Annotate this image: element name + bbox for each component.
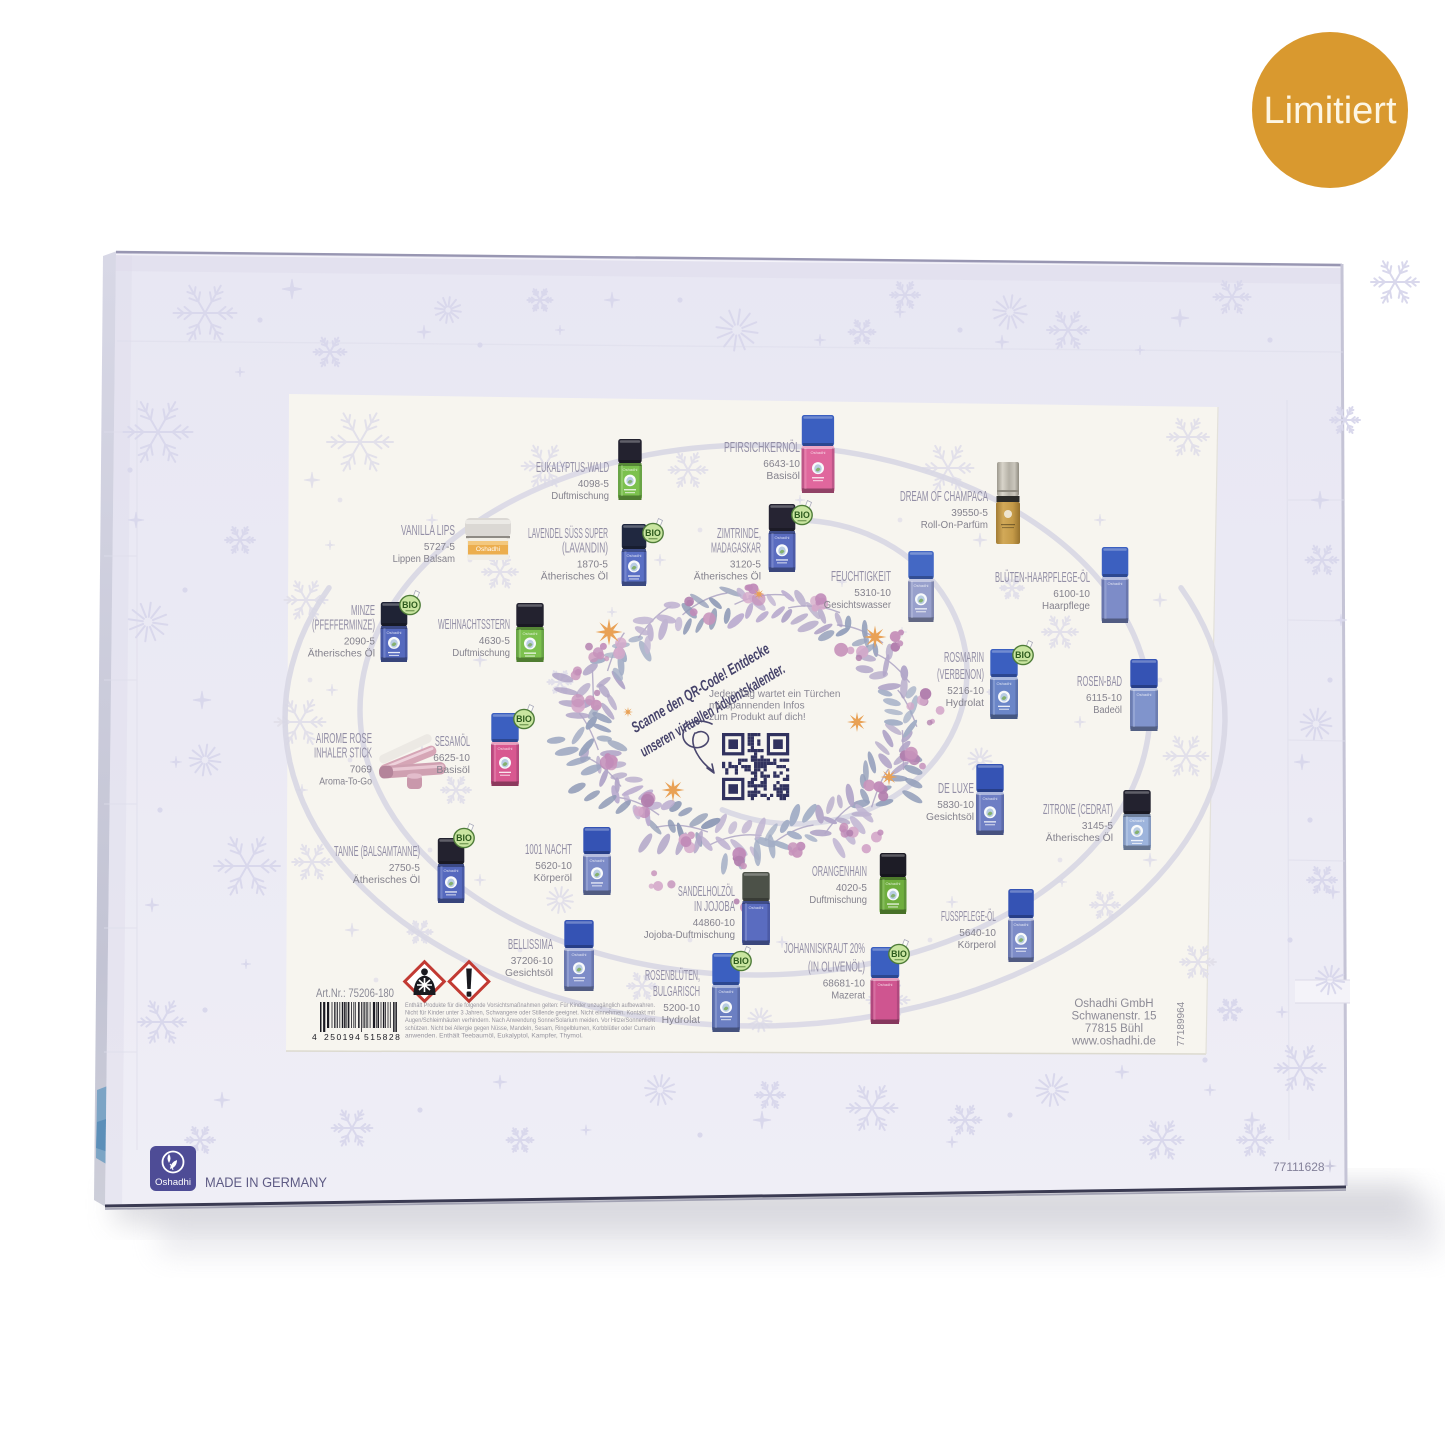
- svg-text:(LAVANDIN): (LAVANDIN): [562, 541, 608, 557]
- svg-text:DE LUXE: DE LUXE: [938, 781, 974, 797]
- svg-text:68681-10: 68681-10: [823, 979, 866, 990]
- svg-text:Gesichtswasser: Gesichtswasser: [824, 600, 892, 611]
- svg-text:6115-10: 6115-10: [1086, 693, 1122, 704]
- svg-text:4098-5: 4098-5: [578, 479, 610, 490]
- svg-text:ROSMARIN: ROSMARIN: [944, 650, 984, 666]
- svg-text:Roll-On-Parfüm: Roll-On-Parfüm: [921, 520, 988, 531]
- svg-text:Duftmischung: Duftmischung: [452, 648, 510, 659]
- svg-text:Jeden Tag wartet ein Türchen: Jeden Tag wartet ein Türchen: [709, 689, 840, 700]
- svg-text:anwenden. Enthält Teebaumöl, E: anwenden. Enthält Teebaumöl, Eukalyptol,…: [405, 1032, 583, 1039]
- svg-text:37206-10: 37206-10: [511, 956, 554, 967]
- svg-text:Duftmischung: Duftmischung: [551, 491, 609, 502]
- svg-text:Hydrolat: Hydrolat: [946, 698, 985, 709]
- svg-text:IN JOJOBA: IN JOJOBA: [694, 899, 735, 915]
- svg-text:VANILLA LIPS: VANILLA LIPS: [401, 523, 455, 539]
- svg-text:Körperol: Körperol: [958, 940, 996, 951]
- svg-text:Nicht für Kinder unter 3 Jahre: Nicht für Kinder unter 3 Jahren, Schwang…: [405, 1010, 655, 1017]
- svg-text:Basisöl: Basisöl: [766, 471, 800, 482]
- svg-text:WEIHNACHTSSTERN: WEIHNACHTSSTERN: [438, 617, 510, 633]
- svg-text:Ätherisches Öl: Ätherisches Öl: [308, 648, 375, 660]
- svg-text:Mazerat: Mazerat: [831, 991, 865, 1002]
- svg-text:MADE IN GERMANY: MADE IN GERMANY: [205, 1174, 328, 1190]
- svg-text:Ätherisches Öl: Ätherisches Öl: [1046, 832, 1113, 844]
- svg-text:ROSEN-BAD: ROSEN-BAD: [1077, 674, 1122, 690]
- svg-text:Ätherisches Öl: Ätherisches Öl: [353, 874, 420, 886]
- svg-text:Augen/Schleimhäuten verhindern: Augen/Schleimhäuten verhindern. Nach Anw…: [405, 1017, 655, 1024]
- svg-text:Ätherisches Öl: Ätherisches Öl: [541, 571, 608, 583]
- svg-text:Oshadhi GmbH: Oshadhi GmbH: [1074, 998, 1153, 1010]
- svg-text:Aroma-To-Go: Aroma-To-Go: [319, 777, 372, 788]
- svg-text:5830-10: 5830-10: [937, 800, 974, 811]
- svg-text:Körperöl: Körperöl: [534, 873, 572, 884]
- svg-text:5620-10: 5620-10: [535, 861, 572, 872]
- svg-text:ORANGENHAIN: ORANGENHAIN: [812, 864, 867, 880]
- svg-text:LAVENDEL SÜSS SUPER: LAVENDEL SÜSS SUPER: [528, 524, 608, 542]
- svg-text:SESAMÖL: SESAMÖL: [435, 732, 470, 750]
- svg-text:Haarpflege: Haarpflege: [1042, 601, 1090, 612]
- svg-text:Oshadhi: Oshadhi: [1137, 692, 1152, 697]
- svg-text:Oshadhi: Oshadhi: [983, 796, 998, 801]
- svg-text:1001 NACHT: 1001 NACHT: [525, 842, 572, 858]
- svg-text:zum Produkt auf dich!: zum Produkt auf dich!: [709, 712, 806, 723]
- svg-text:515828: 515828: [364, 1032, 401, 1042]
- svg-text:Badeöl: Badeöl: [1093, 705, 1122, 716]
- svg-text:6100-10: 6100-10: [1053, 589, 1090, 600]
- svg-text:4020-5: 4020-5: [836, 883, 868, 894]
- svg-text:BLÜTEN-HAARPFLEGE-ÖL: BLÜTEN-HAARPFLEGE-ÖL: [995, 568, 1090, 586]
- svg-text:250194: 250194: [324, 1032, 361, 1042]
- svg-text:Oshadhi: Oshadhi: [914, 583, 929, 588]
- svg-text:FEUCHTIGKEIT: FEUCHTIGKEIT: [831, 569, 891, 585]
- svg-text:5310-10: 5310-10: [854, 588, 891, 599]
- svg-text:PFIRSICHKERNÖL: PFIRSICHKERNÖL: [724, 438, 800, 456]
- svg-text:Lippen Balsam: Lippen Balsam: [393, 554, 455, 565]
- svg-text:Oshadhi: Oshadhi: [623, 467, 638, 472]
- svg-text:5727-5: 5727-5: [424, 542, 456, 553]
- svg-text:(IN OLIVENÖL): (IN OLIVENÖL): [808, 958, 865, 976]
- svg-text:BIO: BIO: [456, 833, 472, 843]
- svg-text:Oshadhi: Oshadhi: [572, 952, 587, 957]
- svg-text:DREAM OF CHAMPACA: DREAM OF CHAMPACA: [900, 489, 988, 505]
- svg-text:Hydrolat: Hydrolat: [662, 1015, 701, 1026]
- svg-text:Basisöl: Basisöl: [436, 765, 470, 776]
- svg-text:5200-10: 5200-10: [663, 1003, 700, 1014]
- svg-text:Oshadhi: Oshadhi: [1014, 922, 1029, 927]
- svg-text:2090-5: 2090-5: [344, 637, 376, 648]
- svg-text:77815 Bühl: 77815 Bühl: [1085, 1023, 1143, 1035]
- svg-text:Oshadhi: Oshadhi: [878, 982, 893, 987]
- svg-text:BIO: BIO: [794, 510, 810, 520]
- svg-text:mit spannenden Infos: mit spannenden Infos: [709, 701, 805, 712]
- svg-text:5216-10: 5216-10: [947, 686, 984, 697]
- svg-text:TANNE (BALSAMTANNE): TANNE (BALSAMTANNE): [334, 844, 420, 860]
- svg-text:BIO: BIO: [733, 956, 749, 966]
- svg-text:44860-10: 44860-10: [693, 918, 736, 929]
- svg-text:JOHANNISKRAUT 20%: JOHANNISKRAUT 20%: [784, 941, 865, 957]
- svg-text:BIO: BIO: [402, 600, 418, 610]
- svg-text:3120-5: 3120-5: [730, 560, 762, 571]
- svg-text:5640-10: 5640-10: [959, 928, 996, 939]
- svg-text:Ätherisches Öl: Ätherisches Öl: [694, 571, 761, 583]
- svg-text:Oshadhi: Oshadhi: [886, 881, 901, 886]
- svg-text:Jojoba-Duftmischung: Jojoba-Duftmischung: [644, 930, 735, 941]
- svg-text:4630-5: 4630-5: [479, 636, 511, 647]
- svg-text:ROSENBLÜTEN,: ROSENBLÜTEN,: [645, 966, 700, 984]
- svg-text:Limitiert: Limitiert: [1263, 90, 1396, 132]
- svg-text:INHALER STICK: INHALER STICK: [314, 746, 372, 762]
- svg-text:Oshadhi: Oshadhi: [997, 681, 1012, 686]
- svg-text:4: 4: [312, 1032, 317, 1042]
- svg-text:Gesichtsöl: Gesichtsöl: [926, 812, 974, 823]
- svg-text:Oshadhi: Oshadhi: [811, 450, 826, 455]
- svg-text:Oshadhi: Oshadhi: [1130, 818, 1145, 823]
- svg-text:SANDELHOLZÖL: SANDELHOLZÖL: [678, 882, 735, 900]
- svg-text:Oshadhi: Oshadhi: [749, 905, 764, 910]
- svg-text:BIO: BIO: [516, 714, 532, 724]
- svg-text:77111628: 77111628: [1273, 1160, 1325, 1174]
- svg-text:Oshadhi: Oshadhi: [590, 858, 605, 863]
- svg-text:Oshadhi: Oshadhi: [1108, 581, 1123, 586]
- svg-text:Oshadhi: Oshadhi: [523, 631, 538, 636]
- svg-text:39550-5: 39550-5: [951, 508, 988, 519]
- svg-text:MADAGASKAR: MADAGASKAR: [711, 541, 761, 557]
- svg-text:BELLISSIMA: BELLISSIMA: [508, 937, 553, 953]
- svg-text:1870-5: 1870-5: [577, 560, 609, 571]
- svg-text:6625-10: 6625-10: [433, 753, 470, 764]
- svg-text:Oshadhi: Oshadhi: [775, 535, 790, 540]
- svg-text:Oshadhi: Oshadhi: [444, 868, 459, 873]
- svg-text:7069: 7069: [350, 765, 373, 776]
- svg-text:Oshadhi: Oshadhi: [476, 546, 500, 553]
- svg-text:FUSSPFLEGE-ÖL: FUSSPFLEGE-ÖL: [941, 907, 996, 925]
- svg-text:BIO: BIO: [645, 528, 661, 538]
- svg-text:Oshadhi: Oshadhi: [155, 1177, 191, 1188]
- svg-text:Schwanenstr. 15: Schwanenstr. 15: [1071, 1011, 1156, 1023]
- svg-text:2750-5: 2750-5: [389, 863, 421, 874]
- svg-text:3145-5: 3145-5: [1082, 821, 1114, 832]
- svg-text:BULGARISCH: BULGARISCH: [653, 984, 700, 1000]
- svg-text:Enthält Produkte für die folge: Enthält Produkte für die folgende Vorsic…: [405, 1002, 655, 1009]
- svg-text:(VERBENON): (VERBENON): [937, 667, 984, 683]
- svg-text:6643-10: 6643-10: [763, 459, 800, 470]
- svg-text:BIO: BIO: [891, 949, 907, 959]
- svg-text:77189964: 77189964: [1176, 1001, 1187, 1046]
- svg-text:Oshadhi: Oshadhi: [719, 989, 734, 994]
- svg-text:Oshadhi: Oshadhi: [627, 553, 642, 558]
- svg-text:www.oshadhi.de: www.oshadhi.de: [1071, 1036, 1156, 1048]
- svg-text:(PFEFFERMINZE): (PFEFFERMINZE): [312, 618, 375, 634]
- svg-text:Oshadhi: Oshadhi: [387, 630, 402, 635]
- svg-text:BIO: BIO: [1015, 650, 1031, 660]
- svg-text:ZITRONE (CEDRAT): ZITRONE (CEDRAT): [1043, 802, 1113, 818]
- svg-text:schützen. Nicht bei Allergie g: schützen. Nicht bei Allergie gegen Nüsse…: [405, 1025, 655, 1032]
- svg-text:Duftmischung: Duftmischung: [809, 895, 867, 906]
- svg-text:Oshadhi: Oshadhi: [498, 746, 513, 751]
- svg-text:EUKALYPTUS-WALD: EUKALYPTUS-WALD: [536, 460, 609, 476]
- svg-text:Art.Nr.: 75206-180: Art.Nr.: 75206-180: [316, 986, 394, 1000]
- svg-text:Gesichtsöl: Gesichtsöl: [505, 968, 553, 979]
